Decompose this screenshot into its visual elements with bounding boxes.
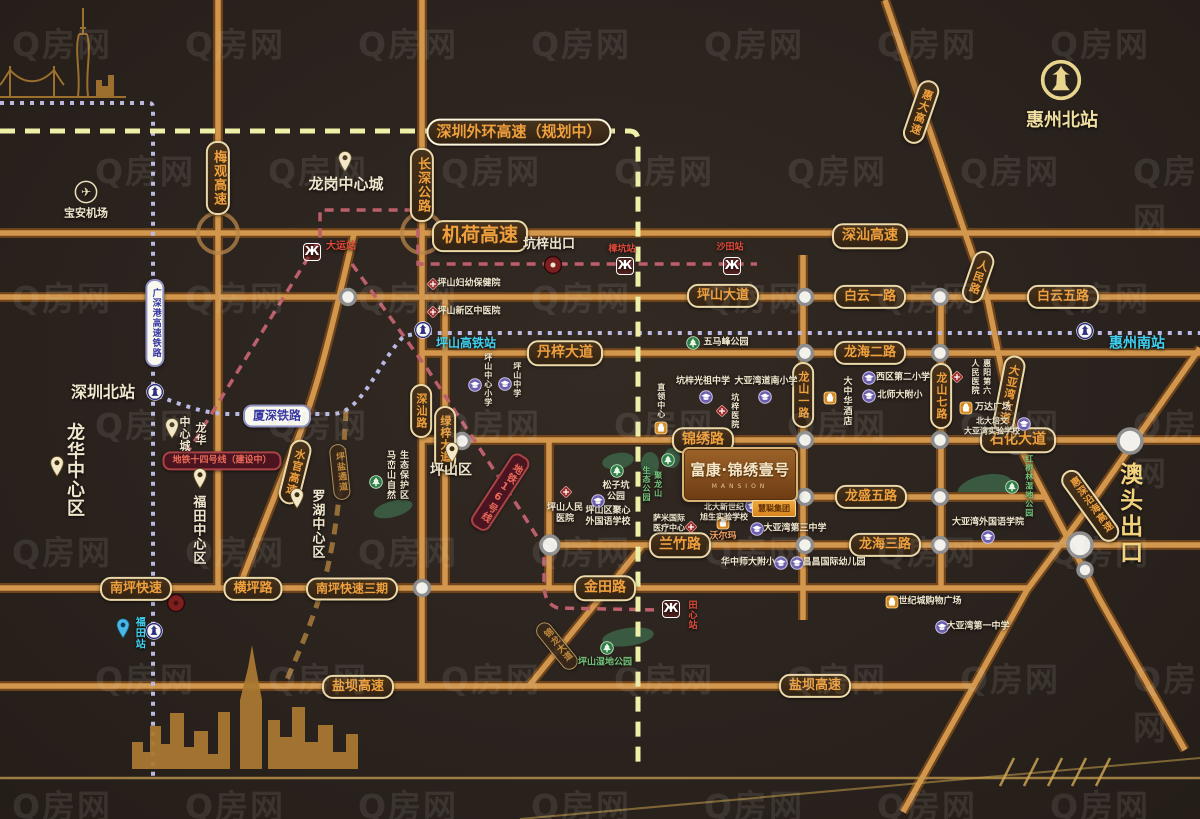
walmart: 沃尔玛	[709, 532, 736, 543]
tianxin-station: 田心站	[684, 600, 697, 630]
label-guangshengang-hsr: 广深港高速铁路	[145, 279, 164, 367]
huiyang-6th-hospital: 惠阳第六 人民医院	[969, 359, 992, 395]
songzikeng-park: 松子坑 公园	[602, 481, 629, 503]
pszx-tcm-hospital: 坪山新区中医院	[437, 307, 500, 318]
hongshulin-park: 红树林湿地公园	[1023, 455, 1035, 518]
dayun-station-icon: Ж	[303, 243, 321, 261]
dayawan-daonan-primary: 大亚湾道南小学	[734, 377, 797, 388]
project-name: 富康·锦绣壹号	[690, 459, 789, 480]
futian-station-pin	[116, 618, 131, 639]
beida-peiwen-school: 北大培文 大亚湾实验学校	[964, 416, 1020, 435]
dazhonghua-hotel: 大中华酒店	[839, 376, 852, 426]
dayawan-foreign-college-icon	[981, 530, 995, 544]
kengzi-hospital: 坑梓医院	[729, 393, 741, 429]
location-map: 机荷高速深汕高速深圳外环高速（规划中）坪山大道白云一路白云五路丹梓大道龙海二路锦…	[0, 0, 1200, 819]
label-lanzhu-rd: 兰竹路	[649, 532, 711, 558]
maluanshan-park-icon	[369, 475, 383, 489]
wumafeng-park-icon	[686, 336, 700, 350]
xiqu-2nd-primary-icon	[862, 371, 876, 385]
label-hengping-rd: 横坪路	[223, 577, 282, 601]
pingshan-central-primary-icon	[468, 378, 482, 392]
futian-station-icon	[145, 622, 164, 641]
tianxin-station-icon: Ж	[662, 600, 680, 618]
wanda-plaza: 万达广场	[975, 403, 1011, 414]
shatian-station-icon: Ж	[723, 257, 741, 275]
project-logo: 富康·锦绣壹号 MANSION	[682, 447, 798, 502]
project-name-en: MANSION	[712, 483, 769, 490]
sami-medical: 萨米国际 医疗中心	[653, 513, 685, 532]
century-city-mall-icon	[885, 595, 899, 609]
shenzhen-north-station-icon	[146, 383, 165, 402]
beida-xinshiji-school: 北大新世纪 旭生实验学校	[700, 502, 748, 521]
luohu-central-district-pin	[289, 487, 305, 509]
label-xiashen-railway: 厦深铁路	[243, 405, 311, 428]
kengzi-hospital-icon	[716, 405, 729, 418]
developer-badge: 慧聪集团	[752, 500, 796, 517]
label-waihuan-expwy: 深圳外环高速（规划中）	[426, 119, 611, 146]
longgang-central-city: 龙岗中心城	[308, 175, 383, 193]
zhangkeng-station: 樟坑站	[608, 245, 635, 256]
huiyang-6th-hospital-icon	[951, 371, 964, 384]
beida-peiwen-school-icon	[1017, 417, 1031, 431]
maluanshan-reserve: 马峦山自然 生态保护区	[383, 450, 409, 500]
dayun-station: 大运站	[326, 241, 356, 253]
label-jintian-rd: 金田路	[574, 575, 636, 601]
label-yanba-expwy-east: 盐坝高速	[779, 674, 851, 698]
dayawan-foreign-college: 大亚湾外国语学院	[952, 518, 1024, 529]
label-danzi-ave: 丹梓大道	[527, 340, 603, 366]
kengzi-guangzu-middle-icon	[699, 390, 713, 404]
city-skyline-bottom	[132, 645, 358, 769]
label-pingshan-ave: 坪山大道	[687, 284, 759, 308]
baoan-airport: 宝安机场	[64, 206, 108, 219]
longhua-central-city: 龙华 中心城	[176, 416, 208, 452]
pingshan-hsr-station: 坪山高铁站	[436, 336, 496, 350]
huizhou-south-station-icon	[1076, 322, 1095, 341]
julongshan-park-icon	[661, 453, 675, 467]
label-longsheng-5th-rd: 龙盛五路	[835, 485, 907, 509]
label-baiyun-1st-rd: 白云一路	[834, 285, 906, 309]
label-baiyun-5th-rd: 白云五路	[1027, 285, 1099, 309]
beishida-primary: 北师大附小	[877, 391, 922, 402]
pingshan-people-hospital: 坪山人民 医院	[547, 503, 583, 525]
pingshan-hsr-station-icon	[414, 321, 433, 340]
longhua-central-district: 龙华中心区	[61, 423, 87, 518]
sami-medical-icon	[685, 521, 698, 534]
label-changshen-hwy: 长深公路	[410, 148, 434, 222]
pingshan-juxin-school: 坪山区聚心 外国语学校	[585, 506, 630, 528]
label-yanba-expwy-west: 盐坝高速	[322, 675, 394, 699]
dayawan-1st-middle: 大亚湾第一中学	[946, 622, 1009, 633]
zhangkeng-station-icon: Ж	[616, 257, 634, 275]
pingshan-district: 坪山区	[430, 463, 472, 480]
svg-text:✈: ✈	[81, 185, 91, 199]
pingshan-people-hospital-icon	[560, 486, 573, 499]
hongshulin-park-icon	[1005, 480, 1019, 494]
label-metro-line14: 地铁十四号线（建设中）	[162, 451, 281, 470]
pingshan-district-pin	[444, 441, 460, 463]
zhiling-center: 直领中心	[655, 383, 667, 419]
label-shenshan-expwy: 深汕高速	[832, 223, 908, 249]
label-shenshan-rd: 深汕路	[410, 384, 432, 438]
futian-station: 福田站	[131, 617, 146, 650]
songzikeng-park-icon	[610, 464, 624, 478]
longgang-central-city-pin	[337, 150, 353, 172]
dayawan-daonan-primary-icon	[758, 390, 772, 404]
xiqu-2nd-primary: 西区第二小学	[876, 373, 930, 384]
dazhonghua-hotel-icon	[823, 391, 837, 405]
label-meiguan-expwy: 梅观高速	[206, 141, 230, 215]
psfy-hospital: 坪山妇幼保健院	[437, 279, 500, 290]
wanda-plaza-icon	[959, 401, 973, 415]
huizhou-south-station: 惠州南站	[1109, 336, 1165, 353]
kengzi-exit: 坑梓出口	[523, 237, 575, 253]
city-skyline-top	[0, 8, 126, 97]
pingshan-wetland-park: 坪山湿地公园	[578, 658, 632, 669]
label-nanping-expwy: 南坪快速	[100, 577, 172, 601]
futian-central-district-pin	[192, 467, 208, 489]
pingshan-central-primary: 坪山中心小学	[482, 353, 494, 407]
huizhou-north-station-icon	[1039, 58, 1083, 102]
futian-central-district: 福田中心区	[188, 495, 207, 565]
century-city-mall: 世纪城购物广场	[898, 597, 961, 608]
pingshan-wetland-park-icon	[600, 641, 614, 655]
julongshan-park: 聚龙山 生态公园	[640, 466, 663, 502]
dayawan-3rd-middle-icon	[750, 522, 764, 536]
zhiling-center-icon	[654, 421, 668, 435]
label-longshan-1st-rd: 龙山一路	[792, 362, 814, 428]
huazhong-shida-primary-icon	[774, 556, 788, 570]
pingshan-middle-school-icon	[498, 377, 512, 391]
label-longshan-7th-rd: 龙山七路	[930, 363, 952, 429]
shatian-station: 沙田站	[716, 243, 743, 254]
baoan-airport-icon: ✈	[74, 180, 98, 204]
huazhong-shida-primary: 华中师大附小	[721, 558, 775, 569]
pingshan-middle-school: 坪山中学	[511, 362, 523, 398]
label-nanping-phase3: 南坪快速三期	[306, 578, 398, 601]
label-longhai-3rd-rd: 龙海三路	[849, 533, 921, 557]
shenzhen-north-station: 深圳北站	[71, 382, 135, 401]
luohu-central-district: 罗湖中心区	[307, 489, 326, 559]
label-longhai-2nd-rd: 龙海二路	[834, 341, 906, 365]
dayawan-3rd-middle: 大亚湾第三中学	[763, 524, 826, 535]
label-jihe-expwy: 机荷高速	[432, 220, 528, 252]
exit-markers	[168, 257, 562, 612]
aotou-exit: 澳头出口	[1111, 462, 1144, 566]
beishida-primary-icon	[862, 389, 876, 403]
changchang-kindergarten: 昌昌国际幼儿园	[802, 558, 865, 569]
huizhou-north-station: 惠州北站	[1026, 110, 1098, 132]
wumafeng-park: 五马峰公园	[703, 338, 748, 349]
kengzi-guangzu-middle: 坑梓光祖中学	[676, 377, 730, 388]
